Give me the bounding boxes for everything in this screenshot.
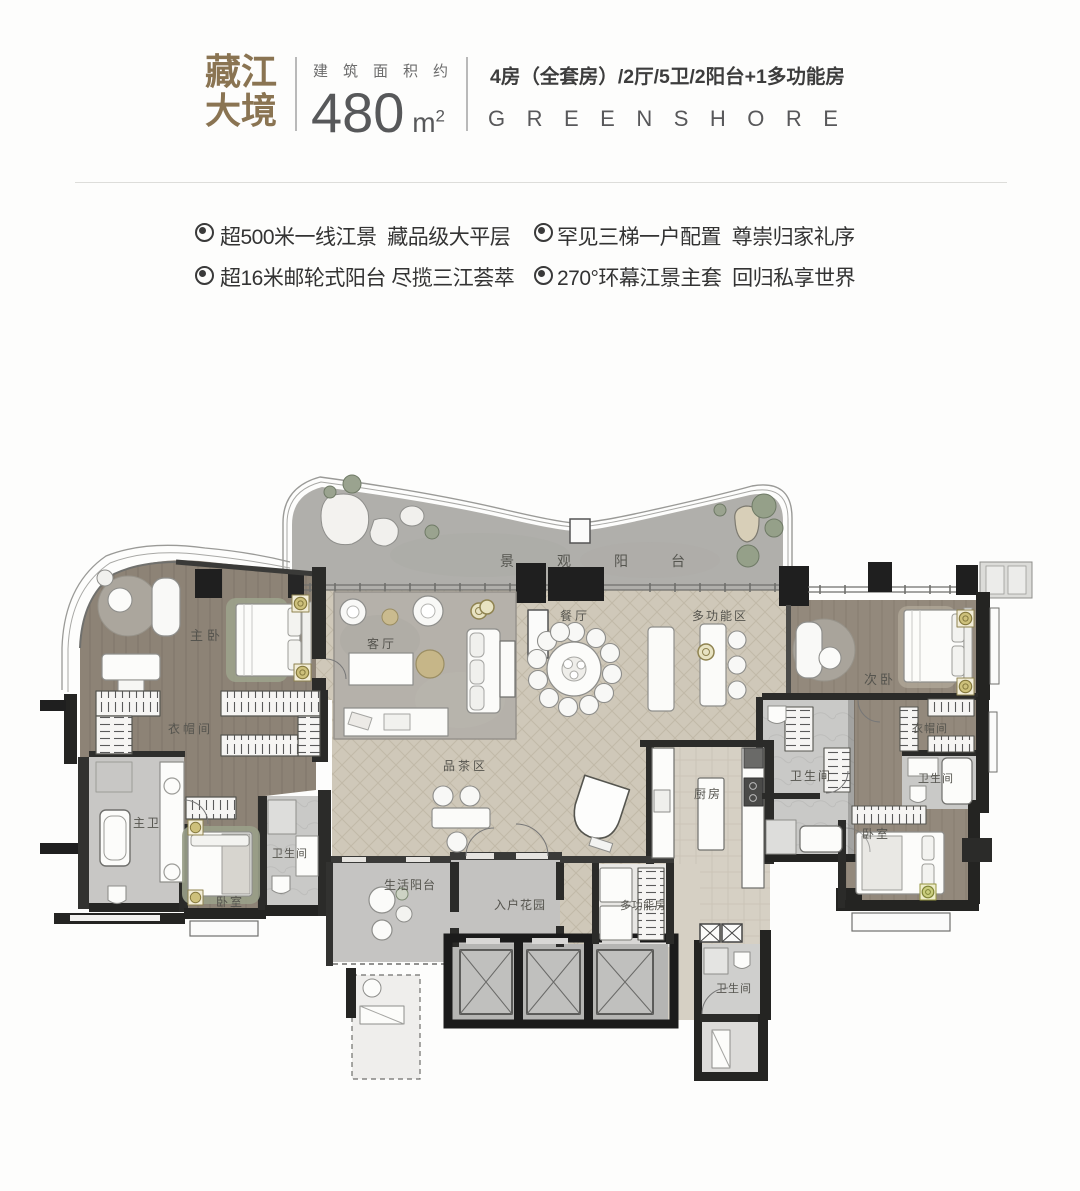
svg-text:次卧: 次卧 <box>864 672 896 687</box>
svg-text:多功能区: 多功能区 <box>692 609 748 623</box>
svg-text:主卫: 主卫 <box>133 816 161 830</box>
svg-text:生活阳台: 生活阳台 <box>384 877 436 892</box>
svg-text:入户花园: 入户花园 <box>494 897 546 912</box>
svg-text:多功能房: 多功能房 <box>620 898 666 912</box>
svg-text:衣帽间: 衣帽间 <box>912 721 948 735</box>
svg-text:厨房: 厨房 <box>694 786 722 801</box>
svg-text:品茶区: 品茶区 <box>443 758 488 773</box>
svg-text:卫生间: 卫生间 <box>716 981 752 995</box>
svg-text:客厅: 客厅 <box>367 636 397 651</box>
svg-text:卫生间: 卫生间 <box>918 771 954 785</box>
svg-text:衣帽间: 衣帽间 <box>168 721 213 736</box>
svg-text:卧室: 卧室 <box>862 826 890 841</box>
svg-text:卫生间: 卫生间 <box>790 769 832 783</box>
svg-text:卧室: 卧室 <box>216 894 244 909</box>
svg-text:卫生间: 卫生间 <box>272 846 308 860</box>
svg-text:主卧: 主卧 <box>190 628 224 643</box>
svg-text:餐厅: 餐厅 <box>560 608 590 623</box>
